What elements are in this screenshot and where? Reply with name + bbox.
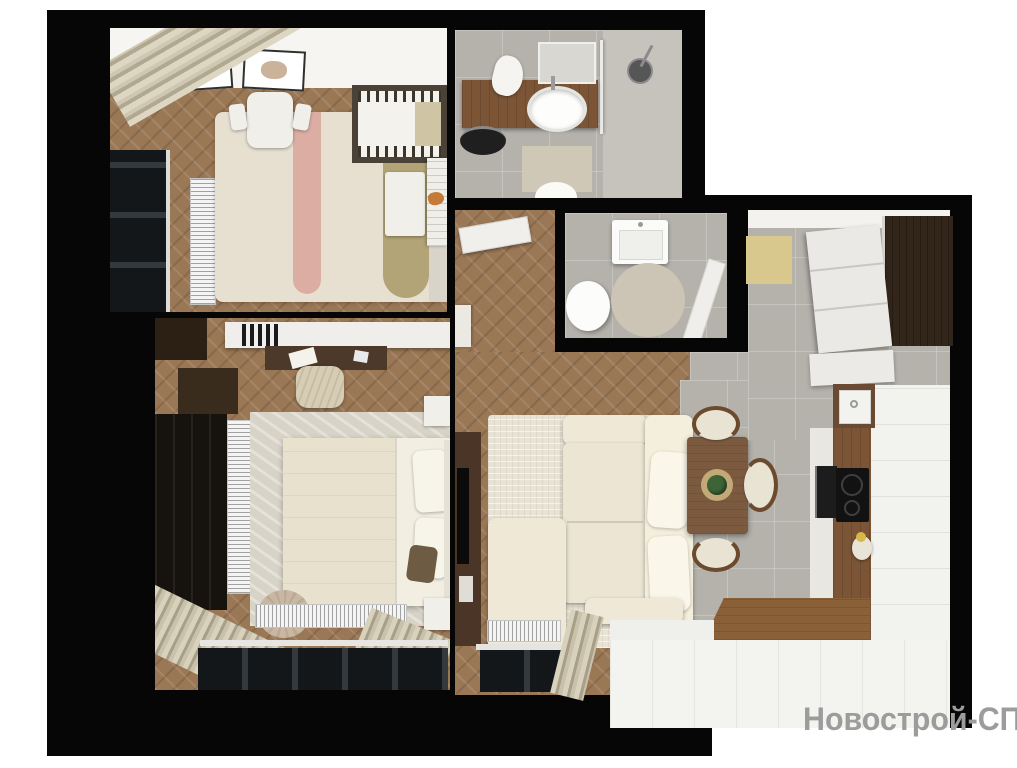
shelf-books: [242, 324, 280, 346]
bedroom-window-sill: [200, 640, 448, 646]
kettle-glow: [856, 532, 866, 542]
kitchen-sink-unit: [833, 384, 875, 428]
rug-pink-stripe: [293, 112, 321, 294]
shower-zone: [603, 30, 682, 198]
watermark-text: Новострой-СПб: [803, 701, 1017, 738]
nursery-radiator: [190, 178, 216, 305]
kitchen-yellow-mat: [746, 236, 792, 284]
drawer-seam-1: [810, 262, 884, 272]
crib-blanket: [415, 102, 441, 146]
bathroom-oval-sink: [527, 86, 587, 132]
nightstand-bottom: [424, 598, 450, 630]
cooktop: [836, 468, 869, 522]
bedroom-radiator-vertical: [227, 420, 251, 594]
oven: [815, 466, 837, 518]
wardrobe: [155, 414, 227, 610]
bedroom-dark-cabinet: [178, 368, 238, 414]
room-bathroom: [455, 30, 682, 198]
wc-round-rug: [611, 263, 685, 337]
room-wc: [565, 213, 727, 338]
crib-rail-top: [358, 91, 441, 102]
room-hallway: [455, 210, 555, 352]
drawer-seam-2: [814, 302, 888, 312]
bed-dark-pillow: [406, 544, 439, 584]
desk-tablet: [353, 350, 369, 363]
burner-large: [841, 474, 863, 496]
crib-rail-bottom: [358, 146, 441, 157]
sofa-cushion-seam: [567, 521, 643, 523]
blanket-edge: [395, 438, 397, 606]
wc-sink-basin: [619, 230, 663, 260]
bathroom-door-open: [458, 216, 531, 254]
room-bedroom: [155, 318, 450, 690]
kids-chair-left: [228, 103, 247, 131]
kitchen-drawer-unit: [806, 224, 892, 353]
dining-chair-right-arm: [742, 458, 778, 512]
console-decor: [459, 576, 473, 602]
wc-toilet: [566, 281, 610, 331]
sofa-armrest-top: [563, 415, 647, 445]
kitchen-tall-cabinet: [882, 216, 953, 346]
shower-glass-panel: [600, 40, 603, 134]
sofa-seat: [563, 443, 647, 603]
kitchen-white-floor-right: [868, 385, 950, 641]
wc-faucet: [638, 222, 643, 227]
crib: [352, 85, 447, 163]
bathroom-faucet: [551, 76, 555, 90]
plant-centerpiece: [707, 475, 727, 495]
burner-small: [844, 500, 860, 516]
kitchen-white-band: [809, 350, 895, 386]
living-radiator: [487, 620, 561, 642]
dining-chair-bottom-arm: [692, 536, 740, 572]
bathroom-mirror: [538, 42, 596, 84]
tv: [457, 468, 469, 564]
wc-door-open: [682, 258, 726, 338]
kitchen-faucet: [850, 400, 858, 408]
bed-headboard: [444, 440, 450, 608]
room-nursery: [110, 28, 447, 312]
wardrobe-top-section: [155, 318, 207, 360]
floorplan-render: Новострой-СПб: [0, 0, 1017, 768]
sofa-pillow-top: [646, 451, 691, 530]
dining-chair-top-arm: [692, 406, 740, 442]
laundry-basket: [460, 126, 506, 155]
shower-head: [627, 58, 653, 84]
kids-table: [247, 92, 293, 148]
nightstand-top: [424, 396, 450, 426]
nursery-window: [110, 150, 170, 312]
toy-bench: [385, 172, 425, 236]
bunny-illustration: [261, 60, 288, 79]
bedroom-window: [198, 648, 448, 690]
hallway-shelf: [455, 305, 471, 347]
bed-blanket: [283, 438, 395, 606]
wc-sink: [612, 220, 668, 264]
lounge-chair: [296, 366, 344, 408]
